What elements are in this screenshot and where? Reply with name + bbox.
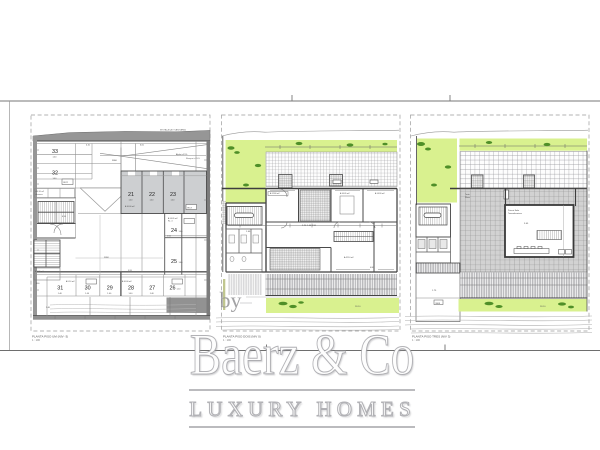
svg-text:A 3.20 m2: A 3.20 m2 bbox=[35, 270, 44, 273]
svg-text:1.40: 1.40 bbox=[179, 262, 184, 264]
svg-text:1.40: 1.40 bbox=[107, 293, 112, 295]
svg-text:by: by bbox=[220, 288, 242, 313]
svg-text:26: 26 bbox=[170, 286, 176, 292]
svg-text:A 12.80 m2: A 12.80 m2 bbox=[270, 192, 280, 195]
svg-text:W03: W03 bbox=[436, 303, 441, 305]
svg-text:1.75: 1.75 bbox=[432, 290, 437, 292]
svg-text:2.40: 2.40 bbox=[46, 307, 51, 309]
svg-text:INSTALACAO SANITARIA: INSTALACAO SANITARIA bbox=[160, 129, 186, 132]
svg-text:Arrumos: Arrumos bbox=[36, 193, 43, 196]
svg-text:28: 28 bbox=[128, 286, 134, 292]
svg-text:Paineis Solar: Paineis Solar bbox=[508, 209, 520, 212]
svg-text:4.10: 4.10 bbox=[86, 145, 91, 147]
svg-text:24: 24 bbox=[171, 228, 177, 234]
svg-text:6.00: 6.00 bbox=[140, 145, 145, 147]
svg-text:Termodinamicos: Termodinamicos bbox=[508, 212, 522, 215]
svg-text:Tecto: Tecto bbox=[465, 193, 470, 196]
svg-text:A 42.10 m2: A 42.10 m2 bbox=[344, 256, 354, 259]
svg-text:1.40: 1.40 bbox=[53, 157, 58, 159]
svg-text:900: 900 bbox=[36, 283, 40, 285]
svg-text:1.40: 1.40 bbox=[129, 293, 134, 295]
svg-text:22: 22 bbox=[149, 192, 155, 198]
svg-text:1.40: 1.40 bbox=[179, 231, 184, 233]
svg-text:Alpha i=15%: Alpha i=15% bbox=[176, 153, 188, 156]
svg-text:27: 27 bbox=[149, 286, 155, 292]
svg-text:Rc. 4: Rc. 4 bbox=[168, 221, 172, 223]
svg-text:1 : 100: 1 : 100 bbox=[32, 338, 40, 342]
svg-text:30: 30 bbox=[85, 286, 91, 292]
svg-text:3.20 1.40 0.90: 3.20 1.40 0.90 bbox=[302, 225, 317, 227]
svg-text:A 14.30 m2: A 14.30 m2 bbox=[375, 192, 385, 195]
svg-text:A 9.10 m2: A 9.10 m2 bbox=[66, 280, 75, 283]
svg-text:A 10.00 m2: A 10.00 m2 bbox=[125, 205, 135, 208]
svg-text:29: 29 bbox=[107, 286, 113, 292]
svg-text:A 4.50 m2: A 4.50 m2 bbox=[36, 190, 45, 193]
svg-text:31: 31 bbox=[57, 286, 63, 292]
svg-text:Plano: Plano bbox=[465, 197, 470, 199]
svg-text:25: 25 bbox=[171, 259, 177, 265]
svg-text:A 16.05 m2: A 16.05 m2 bbox=[340, 192, 350, 195]
svg-text:32: 32 bbox=[52, 171, 58, 177]
svg-text:1.40: 1.40 bbox=[246, 231, 251, 233]
svg-text:1.40: 1.40 bbox=[150, 293, 155, 295]
svg-text:1.40: 1.40 bbox=[85, 293, 90, 295]
svg-text:1.40: 1.40 bbox=[58, 293, 63, 295]
svg-text:21: 21 bbox=[128, 192, 134, 198]
svg-text:RC7: RC7 bbox=[188, 207, 193, 209]
svg-text:28.10: 28.10 bbox=[540, 306, 546, 308]
svg-text:Rampa i=15%: Rampa i=15% bbox=[186, 158, 200, 160]
svg-text:28.10: 28.10 bbox=[355, 306, 361, 308]
svg-text:1.10: 1.10 bbox=[177, 289, 182, 291]
svg-text:33: 33 bbox=[52, 149, 58, 155]
svg-text:A 10.00 m2: A 10.00 m2 bbox=[122, 280, 132, 283]
svg-text:RC2: RC2 bbox=[64, 182, 69, 184]
svg-text:3800: 3800 bbox=[112, 160, 118, 162]
svg-text:23: 23 bbox=[170, 192, 176, 198]
